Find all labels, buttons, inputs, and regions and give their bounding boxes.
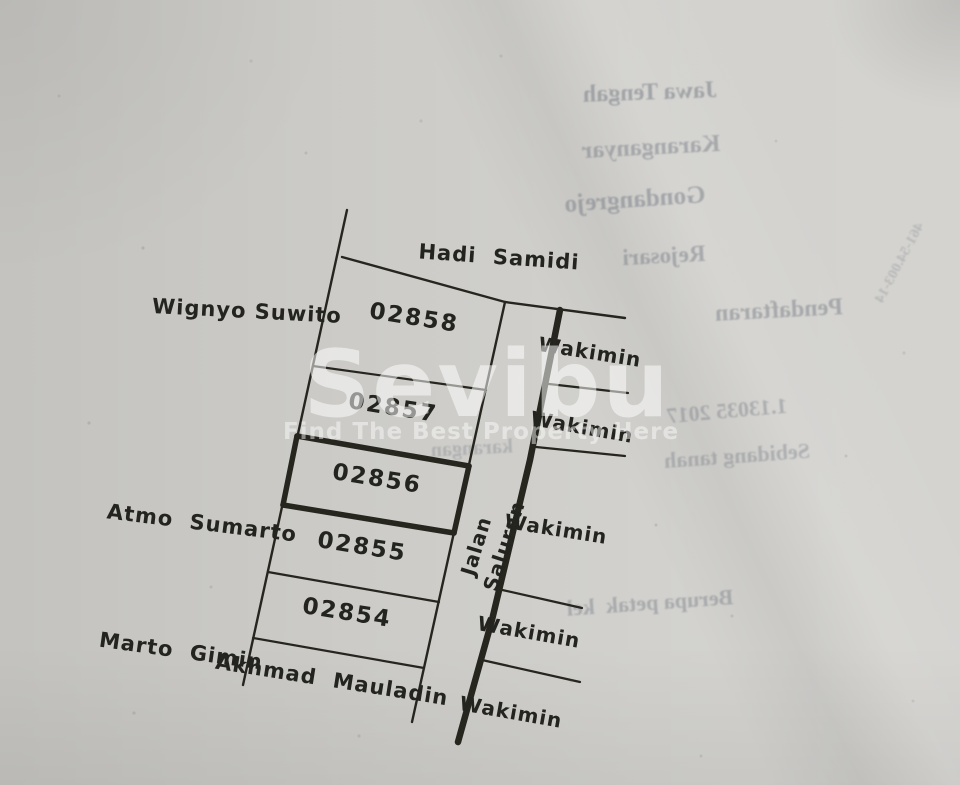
east-divider-2: [536, 447, 625, 456]
paper-speckles: [0, 0, 2, 2]
east-divider-3: [498, 589, 582, 608]
scanned-land-sketch-page: Jawa Tengah Karanganyar Gondangrejo Rejo…: [0, 0, 960, 785]
highlight-plot-bottom-edge: [283, 505, 454, 533]
divider-02855-02854: [268, 572, 439, 602]
highlight-plot-right-edge: [454, 466, 469, 533]
east-divider-4: [482, 660, 580, 682]
highlight-plot-left-edge: [283, 436, 297, 505]
watermark-tagline: Find The Best Property Here: [283, 419, 679, 445]
